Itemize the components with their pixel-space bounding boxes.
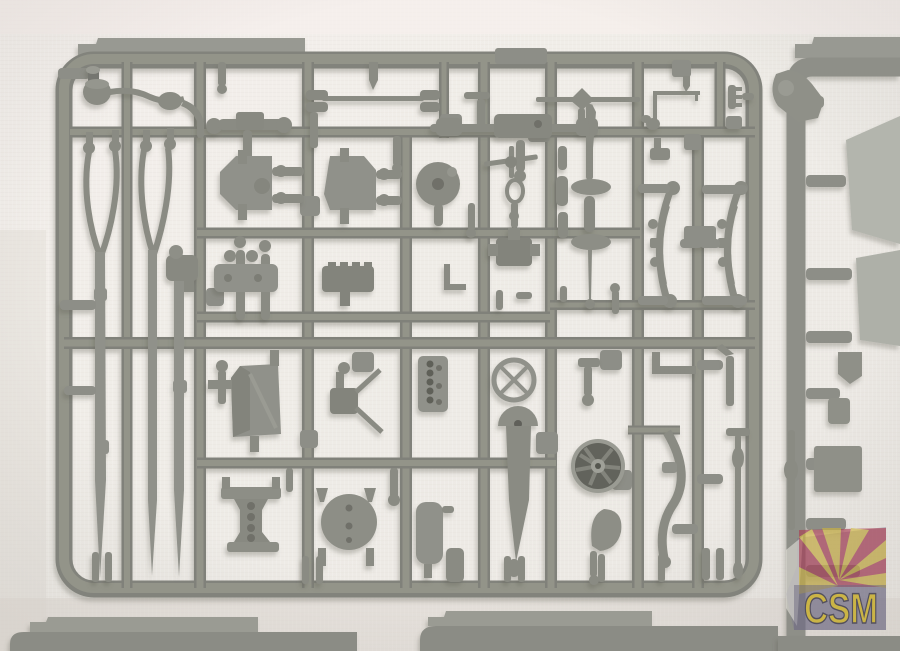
svg-text:CSM: CSM	[804, 585, 878, 633]
